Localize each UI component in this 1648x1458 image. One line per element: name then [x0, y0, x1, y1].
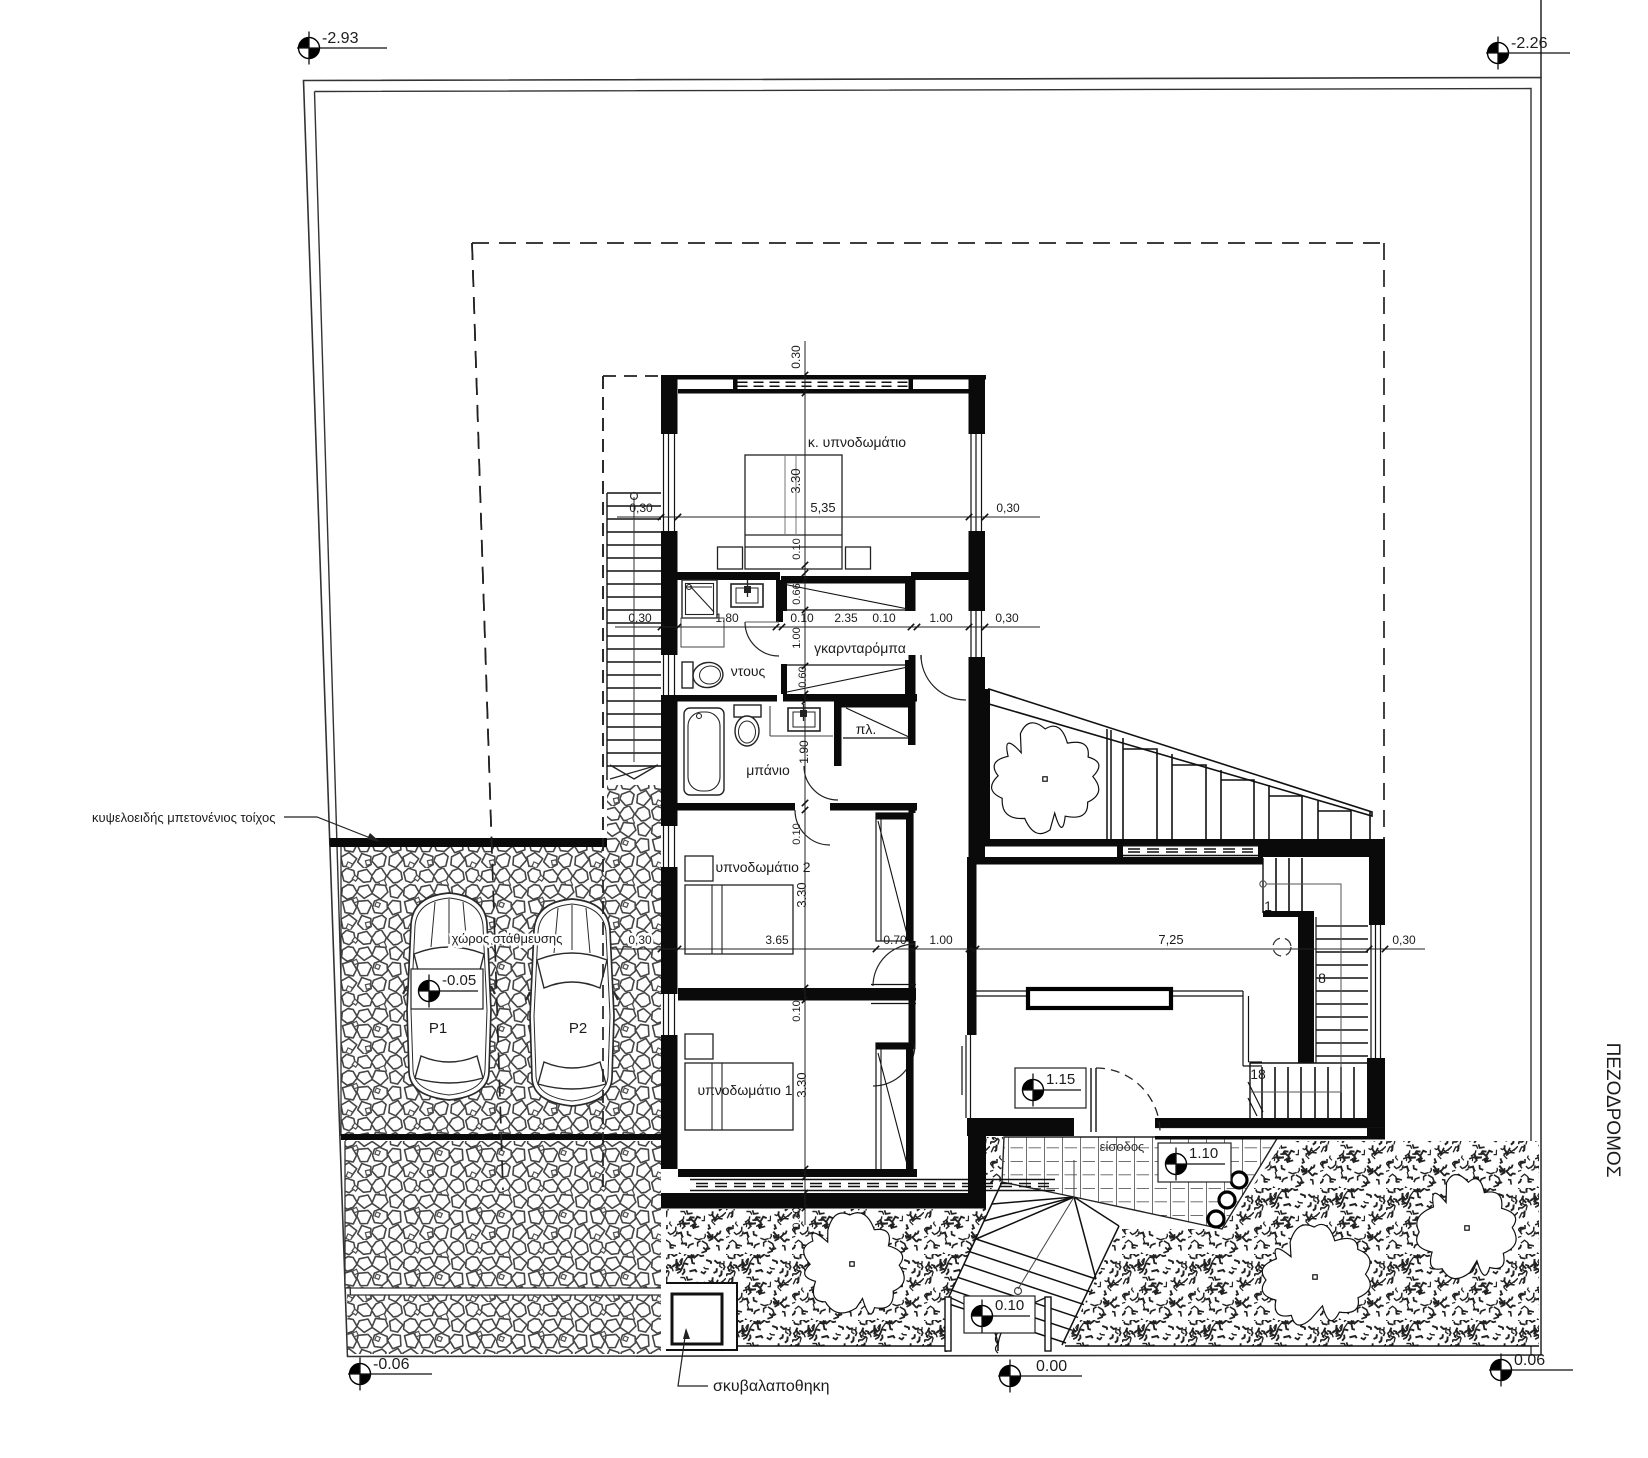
svg-text:P2: P2	[569, 1020, 587, 1037]
svg-text:1.00: 1.00	[929, 611, 953, 625]
svg-text:7,25: 7,25	[1158, 932, 1183, 947]
svg-text:0.10: 0.10	[791, 538, 803, 559]
svg-text:P1: P1	[429, 1020, 447, 1037]
svg-text:1.00: 1.00	[929, 933, 953, 947]
svg-text:κ. υπνοδωμάτιο: κ. υπνοδωμάτιο	[808, 434, 906, 450]
svg-text:0,30: 0,30	[1392, 933, 1416, 947]
svg-text:2.35: 2.35	[834, 611, 858, 625]
svg-text:0.00: 0.00	[1036, 1358, 1067, 1375]
svg-text:0.70: 0.70	[883, 933, 907, 947]
svg-text:3.30: 3.30	[788, 468, 803, 493]
svg-text:0.10: 0.10	[872, 611, 896, 625]
svg-text:υπνοδωμάτιο 2: υπνοδωμάτιο 2	[715, 859, 810, 875]
svg-text:0,30: 0,30	[628, 933, 652, 947]
svg-text:χώρος στάθμευσης: χώρος στάθμευσης	[452, 931, 563, 946]
svg-text:0,30: 0,30	[996, 501, 1020, 515]
svg-text:-0.06: -0.06	[373, 1356, 410, 1373]
svg-text:1.80: 1.80	[715, 611, 739, 625]
svg-text:-2.93: -2.93	[322, 30, 359, 47]
svg-text:πλ.: πλ.	[856, 721, 877, 737]
svg-text:0.10: 0.10	[791, 1000, 803, 1021]
svg-text:υπνοδωμάτιο 1: υπνοδωμάτιο 1	[697, 1082, 792, 1098]
svg-text:0.30: 0.30	[789, 345, 803, 369]
svg-text:1: 1	[1264, 898, 1272, 914]
svg-text:3.30: 3.30	[794, 882, 809, 907]
svg-text:1.90: 1.90	[797, 740, 811, 764]
svg-text:1.15: 1.15	[1046, 1071, 1075, 1088]
svg-text:μπάνιο: μπάνιο	[746, 762, 790, 778]
svg-text:8: 8	[1318, 970, 1326, 986]
svg-text:1.00: 1.00	[791, 627, 803, 648]
svg-text:3.65: 3.65	[765, 933, 789, 947]
svg-text:18: 18	[1250, 1066, 1266, 1082]
svg-text:0.10: 0.10	[791, 823, 803, 844]
svg-text:0.06: 0.06	[1514, 1352, 1545, 1369]
svg-text:3.30: 3.30	[794, 1072, 809, 1097]
svg-text:1.10: 1.10	[1189, 1145, 1218, 1162]
svg-text:0.60: 0.60	[797, 666, 809, 687]
svg-text:0.66: 0.66	[791, 583, 803, 604]
svg-text:0.10: 0.10	[995, 1297, 1024, 1314]
svg-text:0,30: 0,30	[629, 501, 653, 515]
svg-text:ΠΕΖΟΔΡΟΜΟΣ: ΠΕΖΟΔΡΟΜΟΣ	[1602, 1043, 1623, 1178]
svg-text:-2.26: -2.26	[1511, 35, 1548, 52]
svg-text:είσοδος: είσοδος	[1100, 1139, 1145, 1154]
svg-text:0.30: 0.30	[791, 1207, 803, 1228]
svg-text:γκαρνταρόμπα: γκαρνταρόμπα	[814, 640, 906, 656]
svg-text:5,35: 5,35	[810, 500, 835, 515]
svg-text:ντους: ντους	[731, 663, 766, 679]
svg-text:0,30: 0,30	[628, 611, 652, 625]
svg-text:0,30: 0,30	[995, 611, 1019, 625]
svg-text:-0.05: -0.05	[442, 972, 476, 989]
svg-text:σκυβαλαποθηκη: σκυβαλαποθηκη	[713, 1378, 830, 1395]
svg-text:κυψελοειδής μπετονένιος τοίχος: κυψελοειδής μπετονένιος τοίχος	[92, 810, 276, 825]
